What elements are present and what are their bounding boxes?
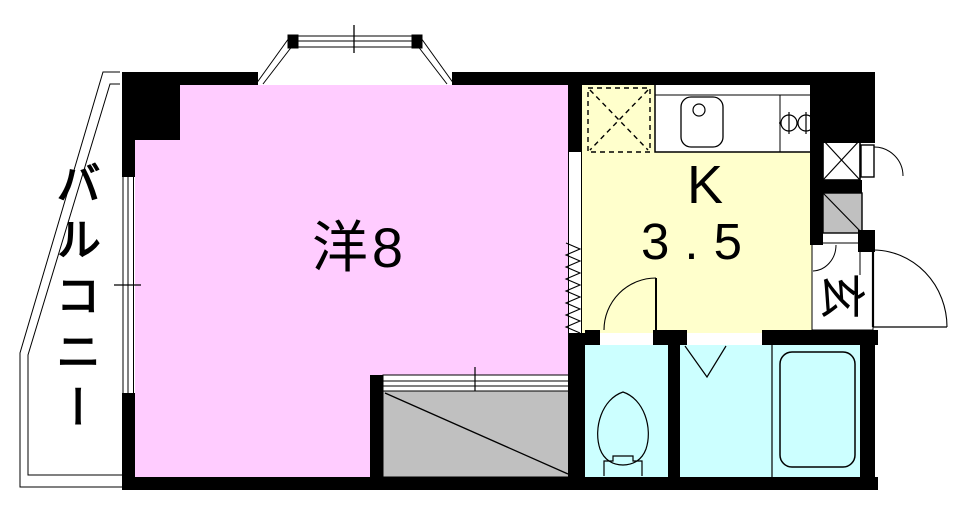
closet xyxy=(383,367,572,477)
kitchen-letter-label: K xyxy=(640,158,770,212)
kitchen-size-label: 3.5 xyxy=(606,216,792,267)
floor-plan: 洋8 K 3.5 玄 バルコニー xyxy=(0,0,971,510)
toilet-room-floor xyxy=(585,345,668,477)
washroom-floor xyxy=(680,345,860,477)
closet-sliding-door xyxy=(383,375,572,391)
faucet-icon xyxy=(693,104,705,116)
floor-plan-drawing xyxy=(0,0,971,510)
kitchen-counter xyxy=(655,84,815,152)
balcony-label: バルコニー xyxy=(52,160,97,440)
pipe-space-box-icon xyxy=(823,140,860,180)
bay-window xyxy=(256,25,454,84)
entrance-label: 玄 xyxy=(811,269,865,323)
entrance-door xyxy=(873,250,947,327)
meter-box-door xyxy=(861,145,903,177)
shoe-cabinet-icon xyxy=(823,193,862,233)
western-room-label: 洋8 xyxy=(262,220,457,276)
